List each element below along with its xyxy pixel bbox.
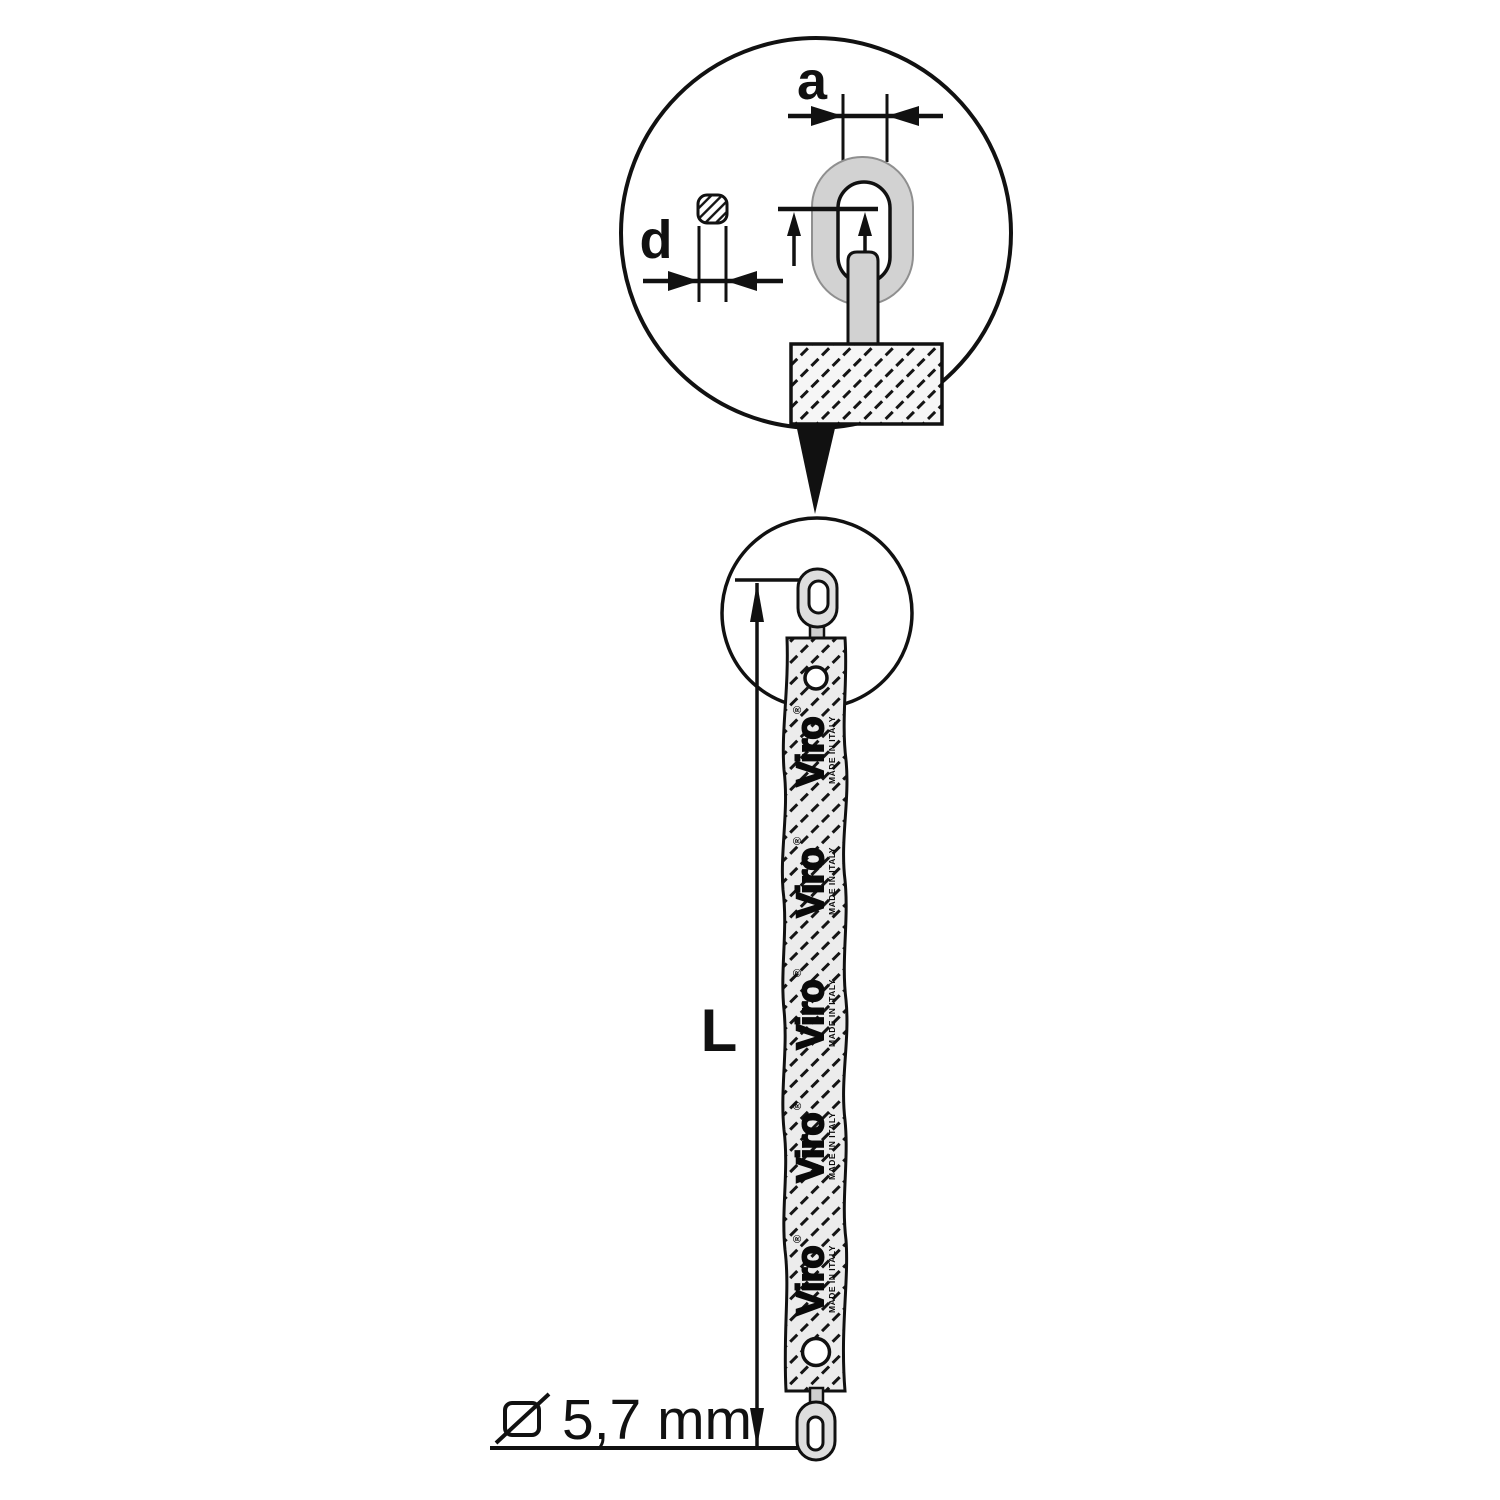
- sleeve-block-detail: [791, 344, 942, 424]
- viro-registered-mark: ®: [792, 969, 804, 977]
- chain-technical-diagram: a d: [0, 0, 1500, 1500]
- dimension-a-label: a: [797, 51, 828, 111]
- diagram-svg: a d: [0, 0, 1500, 1500]
- viro-made-in-text: MADE IN ITALY: [827, 847, 837, 915]
- viro-made-in-text: MADE IN ITALY: [827, 1245, 837, 1313]
- viro-logo-text: Viro: [790, 848, 832, 917]
- viro-logo: Viro ® MADE IN ITALY: [790, 969, 837, 1050]
- viro-made-in-text: MADE IN ITALY: [827, 716, 837, 784]
- detail-view-large: a d: [621, 38, 1011, 428]
- viro-logo-text: Viro: [790, 980, 832, 1049]
- viro-logo-text: Viro: [790, 717, 832, 786]
- viro-logo-text: Viro: [790, 1113, 832, 1182]
- chain-sleeve: Viro ® MADE IN ITALY Viro ® MADE IN ITAL…: [782, 638, 847, 1391]
- viro-registered-mark: ®: [792, 837, 804, 845]
- viro-registered-mark: ®: [792, 1235, 804, 1243]
- diameter-value: 5,7 mm: [562, 1388, 752, 1452]
- viro-logo-text: Viro: [790, 1246, 832, 1315]
- viro-logo: Viro ® MADE IN ITALY: [790, 1102, 837, 1183]
- rivet-hole-top: [805, 667, 827, 689]
- chain-link-detail-cross-link: [848, 252, 878, 346]
- top-link-hole: [809, 581, 828, 613]
- viro-made-in-text: MADE IN ITALY: [827, 1112, 837, 1180]
- viro-registered-mark: ®: [792, 1102, 804, 1110]
- rivet-hole-bottom: [803, 1339, 830, 1366]
- chain-assembly: Viro ® MADE IN ITALY Viro ® MADE IN ITAL…: [782, 569, 847, 1391]
- viro-made-in-text: MADE IN ITALY: [827, 979, 837, 1047]
- viro-logo: Viro ® MADE IN ITALY: [790, 706, 837, 787]
- sleeve-block-hatch: [791, 344, 942, 424]
- dimension-d-label: d: [640, 210, 673, 270]
- wire-cross-section-hatch: [698, 195, 727, 223]
- viro-logo: Viro ® MADE IN ITALY: [790, 1235, 837, 1316]
- viro-logo: Viro ® MADE IN ITALY: [790, 837, 837, 918]
- viro-registered-mark: ®: [792, 706, 804, 714]
- bottom-link-hole: [808, 1417, 823, 1450]
- dimension-length-label: L: [701, 997, 738, 1064]
